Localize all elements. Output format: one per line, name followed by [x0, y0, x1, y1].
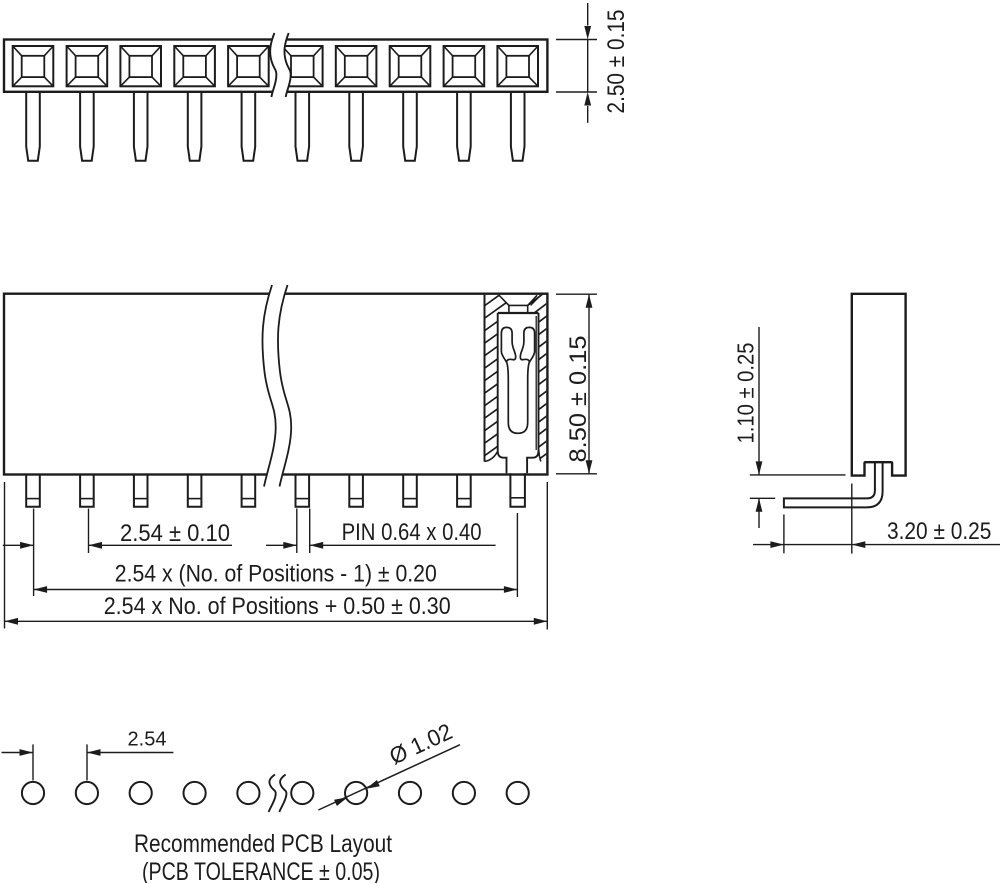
svg-text:PIN 0.64 x 0.40: PIN 0.64 x 0.40 [342, 519, 482, 546]
svg-text:3.20 ± 0.25: 3.20 ± 0.25 [887, 518, 992, 545]
svg-text:2.54: 2.54 [128, 729, 167, 751]
svg-text:(PCB TOLERANCE ± 0.05): (PCB TOLERANCE ± 0.05) [142, 858, 380, 883]
svg-text:Ø 1.02: Ø 1.02 [385, 718, 456, 769]
svg-text:Recommended PCB Layout: Recommended PCB Layout [134, 830, 392, 858]
svg-text:2.50 ± 0.15: 2.50 ± 0.15 [603, 10, 630, 114]
svg-text:2.54 x (No. of Positions - 1): 2.54 x (No. of Positions - 1) ± 0.20 [115, 561, 437, 588]
svg-text:8.50 ± 0.15: 8.50 ± 0.15 [565, 336, 592, 463]
svg-text:1.10 ± 0.25: 1.10 ± 0.25 [733, 343, 759, 444]
svg-text:2.54 x No. of Positions + 0.50: 2.54 x No. of Positions + 0.50 ± 0.30 [104, 593, 451, 620]
svg-text:2.54 ± 0.10: 2.54 ± 0.10 [120, 520, 230, 547]
